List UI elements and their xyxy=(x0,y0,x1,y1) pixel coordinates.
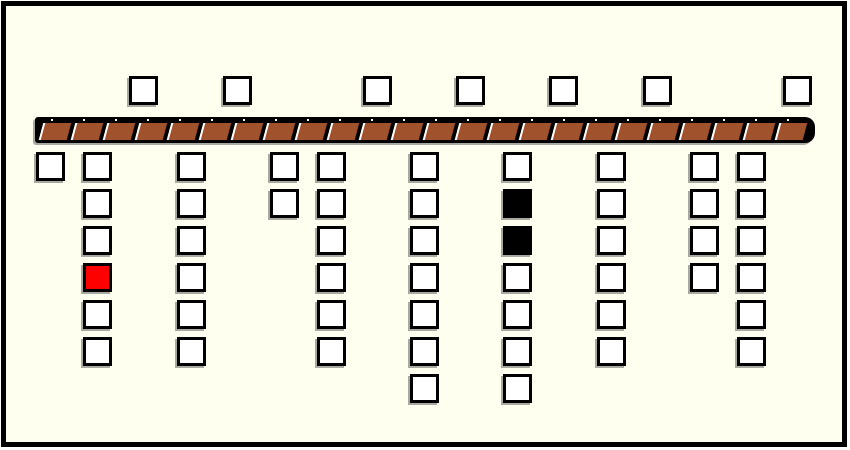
grid-square xyxy=(270,189,299,218)
grid-square xyxy=(690,189,719,218)
belt-segment xyxy=(423,123,456,140)
belt-tick-mark xyxy=(787,119,789,121)
grid-square xyxy=(83,152,112,181)
belt-segment xyxy=(167,123,200,140)
belt-segment xyxy=(231,123,264,140)
grid-square xyxy=(317,226,346,255)
grid-square xyxy=(83,189,112,218)
belt-segment xyxy=(359,123,392,140)
grid-square xyxy=(317,152,346,181)
grid-square xyxy=(690,263,719,292)
belt-segment xyxy=(199,123,232,140)
belt-tick-mark xyxy=(339,119,341,121)
belt-tick-mark xyxy=(435,119,437,121)
belt-tick-mark xyxy=(211,119,213,121)
belt-tick-mark xyxy=(307,119,309,121)
belt-segment xyxy=(615,123,648,140)
grid-square xyxy=(503,263,532,292)
grid-square xyxy=(177,300,206,329)
belt-segment xyxy=(295,123,328,140)
diagram-layer xyxy=(0,0,850,450)
grid-square xyxy=(410,374,439,403)
grid-square xyxy=(690,152,719,181)
grid-square xyxy=(503,374,532,403)
grid-square xyxy=(503,337,532,366)
belt-tick-mark xyxy=(499,119,501,121)
grid-square xyxy=(597,189,626,218)
top-square xyxy=(129,76,158,105)
grid-square xyxy=(690,226,719,255)
belt-segment xyxy=(743,123,776,140)
grid-square-red xyxy=(83,263,112,292)
grid-square xyxy=(737,226,766,255)
grid-square xyxy=(737,300,766,329)
grid-square xyxy=(83,226,112,255)
belt-tick-mark xyxy=(147,119,149,121)
belt-tick-mark xyxy=(723,119,725,121)
grid-square xyxy=(597,226,626,255)
grid-square xyxy=(410,337,439,366)
grid-square xyxy=(597,152,626,181)
belt-tick-mark xyxy=(83,119,85,121)
top-square xyxy=(549,76,578,105)
grid-square xyxy=(410,226,439,255)
belt-segment xyxy=(775,123,808,140)
belt-segment xyxy=(391,123,424,140)
grid-square xyxy=(597,263,626,292)
grid-square xyxy=(177,189,206,218)
belt-tick-mark xyxy=(179,119,181,121)
grid-square xyxy=(270,152,299,181)
grid-square xyxy=(83,337,112,366)
conveyor-belt xyxy=(35,117,815,143)
belt-tick-mark xyxy=(403,119,405,121)
belt-segment xyxy=(263,123,296,140)
top-square xyxy=(783,76,812,105)
grid-square xyxy=(36,152,65,181)
grid-square xyxy=(410,263,439,292)
grid-square xyxy=(503,300,532,329)
belt-tick-mark xyxy=(275,119,277,121)
belt-tick-mark xyxy=(563,119,565,121)
belt-tick-mark xyxy=(371,119,373,121)
grid-square-black xyxy=(503,189,532,218)
grid-square xyxy=(177,152,206,181)
belt-tick-mark xyxy=(243,119,245,121)
belt-segment xyxy=(583,123,616,140)
belt-tick-mark xyxy=(467,119,469,121)
grid-square xyxy=(597,337,626,366)
grid-square xyxy=(597,300,626,329)
belt-segment xyxy=(455,123,488,140)
belt-tick-mark xyxy=(627,119,629,121)
grid-square xyxy=(737,263,766,292)
belt-tick-mark xyxy=(691,119,693,121)
grid-square xyxy=(317,337,346,366)
grid-square xyxy=(410,152,439,181)
grid-square xyxy=(177,263,206,292)
belt-segment xyxy=(327,123,360,140)
belt-tick-mark xyxy=(595,119,597,121)
grid-square xyxy=(317,189,346,218)
grid-square xyxy=(83,300,112,329)
grid-square xyxy=(317,263,346,292)
belt-segment xyxy=(103,123,136,140)
belt-segment xyxy=(647,123,680,140)
belt-tick-mark xyxy=(115,119,117,121)
grid-square xyxy=(737,189,766,218)
belt-segment xyxy=(39,123,72,140)
top-square xyxy=(456,76,485,105)
belt-segment xyxy=(487,123,520,140)
grid-square xyxy=(317,300,346,329)
belt-segment xyxy=(135,123,168,140)
belt-tick-mark xyxy=(755,119,757,121)
grid-square xyxy=(177,337,206,366)
grid-square xyxy=(410,189,439,218)
grid-square xyxy=(737,152,766,181)
belt-tick-mark xyxy=(51,119,53,121)
grid-square xyxy=(737,337,766,366)
top-square xyxy=(223,76,252,105)
top-square xyxy=(643,76,672,105)
belt-segment xyxy=(551,123,584,140)
grid-square xyxy=(177,226,206,255)
grid-square-black xyxy=(503,226,532,255)
grid-square xyxy=(503,152,532,181)
belt-tick-mark xyxy=(531,119,533,121)
top-square xyxy=(363,76,392,105)
belt-segment xyxy=(71,123,104,140)
belt-segment xyxy=(711,123,744,140)
belt-segment xyxy=(679,123,712,140)
belt-segment xyxy=(519,123,552,140)
grid-square xyxy=(410,300,439,329)
belt-tick-mark xyxy=(659,119,661,121)
